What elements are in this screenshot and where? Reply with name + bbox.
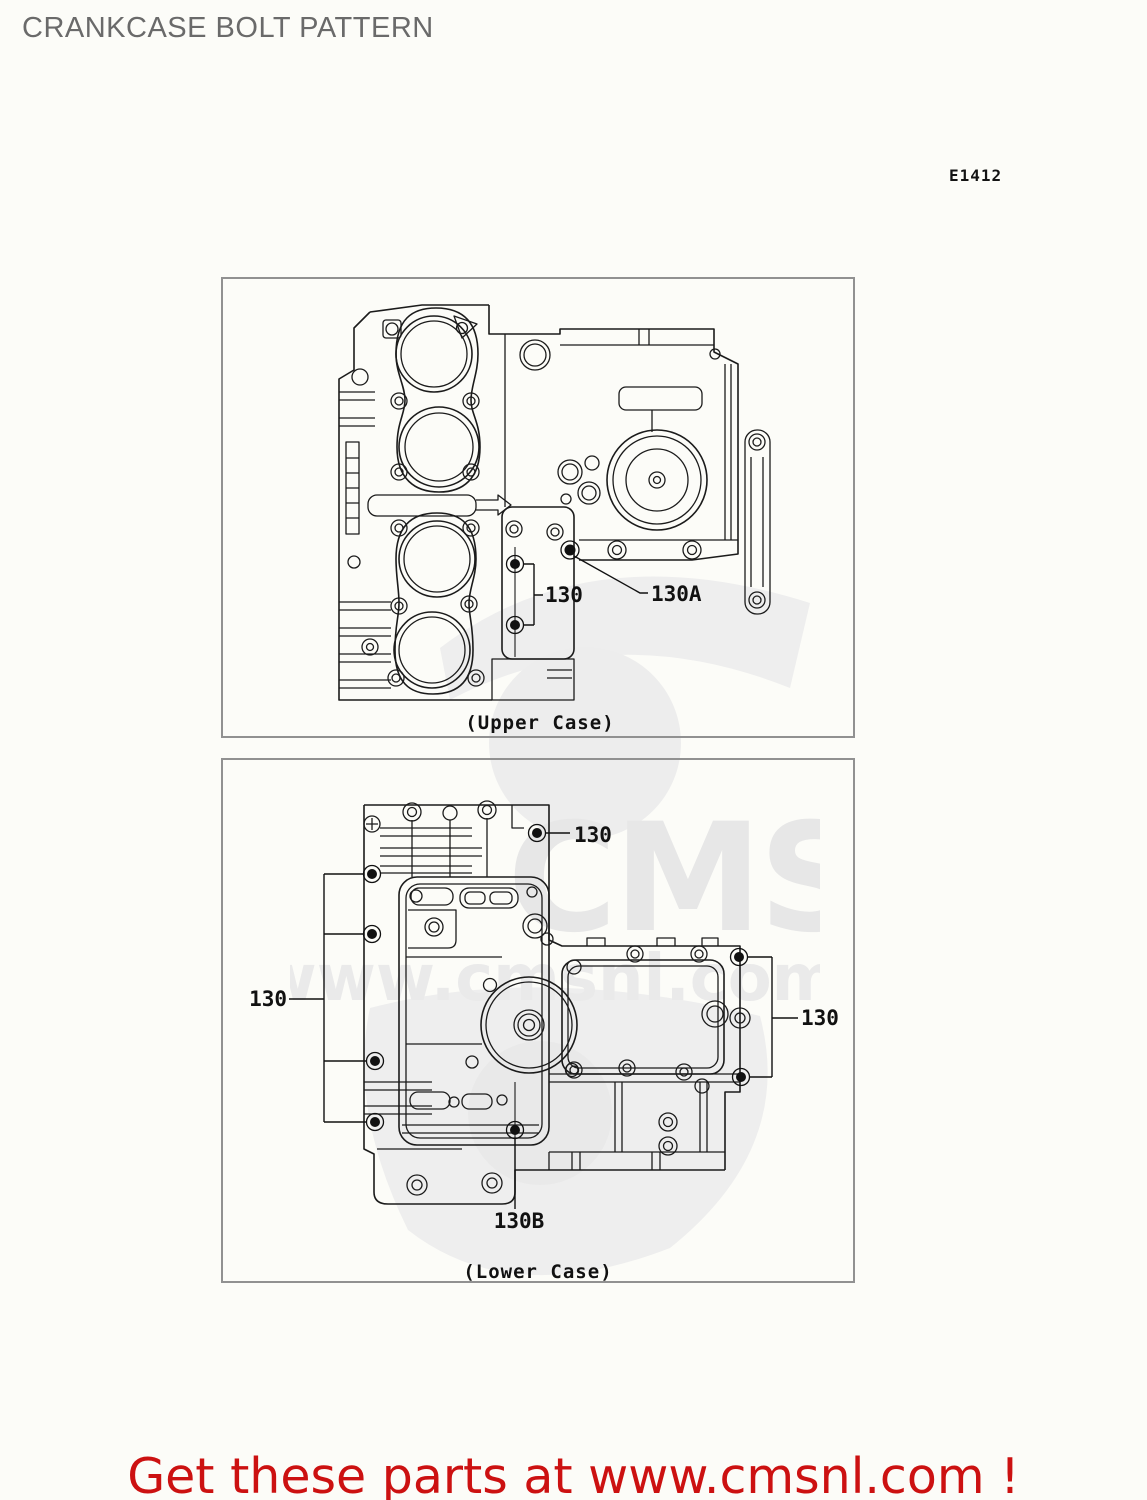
caption-upper-case: (Upper Case) [465, 712, 614, 734]
lower-case-diagram-box: 130 130 130 130B (Lower Case) [221, 758, 855, 1283]
part-label-130b: 130B [494, 1209, 545, 1233]
page-title: CRANKCASE BOLT PATTERN [22, 12, 434, 45]
parts-fiche-page: CRANKCASE BOLT PATTERN E1412 CMS www.cms… [0, 0, 1147, 1500]
upper-case-diagram-box: 130 130A (Upper Case) [221, 277, 855, 738]
footer-cmsnl-link[interactable]: Get these parts at www.cmsnl.com ! [0, 1448, 1147, 1500]
part-label-130-top: 130 [574, 823, 612, 847]
part-label-130-right: 130 [801, 1006, 839, 1030]
upper-leader-lines [523, 556, 648, 625]
part-label-130-upper: 130 [545, 583, 583, 607]
part-label-130a: 130A [651, 582, 702, 606]
figure-code: E1412 [949, 166, 1002, 185]
caption-lower-case: (Lower Case) [463, 1261, 612, 1281]
upper-case-drawing: 130 130A (Upper Case) [223, 279, 853, 736]
part-label-130-left: 130 [249, 987, 287, 1011]
lower-case-drawing: 130 130 130 130B (Lower Case) [223, 760, 853, 1281]
